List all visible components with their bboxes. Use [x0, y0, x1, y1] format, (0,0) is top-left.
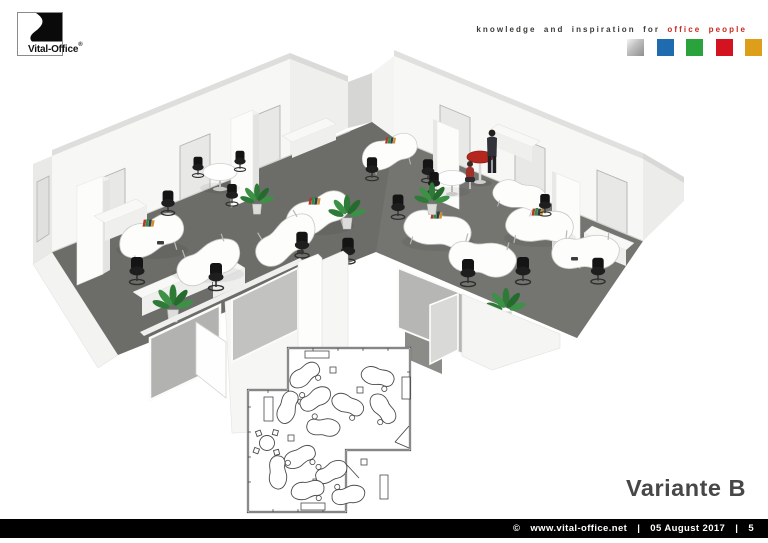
slide: { "header": { "logo": { "text": "Vital-O… — [0, 0, 768, 543]
office-chair — [161, 191, 175, 216]
footer-website[interactable]: www.vital-office.net — [530, 523, 627, 534]
tagline-prefix: knowledge and inspiration for — [476, 25, 660, 34]
footer-separator: | — [637, 523, 640, 534]
copyright-symbol: © — [513, 523, 520, 534]
office-chair — [366, 157, 379, 180]
variant-title: Variante B — [626, 475, 746, 502]
office-chair — [209, 263, 224, 291]
desk-phone — [157, 241, 164, 245]
office-chair — [226, 184, 238, 206]
office-chair — [234, 151, 245, 172]
valley-wall-left — [348, 73, 372, 128]
office-chair — [130, 257, 145, 285]
blue-square — [657, 39, 674, 56]
office-chair — [516, 257, 531, 285]
brand-color-squares — [627, 39, 762, 56]
tagline: knowledge and inspiration for office peo… — [476, 25, 747, 34]
office-chair — [461, 259, 476, 287]
footer-separator: | — [735, 523, 738, 534]
open-door — [196, 322, 226, 398]
office-chair — [539, 194, 551, 216]
logo-wordmark: Vital-Office® — [28, 42, 82, 55]
green-square — [686, 39, 703, 56]
office-chair — [391, 195, 405, 220]
red-square — [716, 39, 733, 56]
corner-post — [298, 254, 322, 356]
office-3d-rendering — [0, 0, 768, 543]
right-end-wall — [643, 159, 684, 241]
footer-bar: © www.vital-office.net | 05 August 2017 … — [0, 519, 768, 538]
desk-phone — [571, 257, 578, 261]
registered-mark: ® — [78, 42, 82, 48]
gold-square — [745, 39, 762, 56]
silver-square — [627, 39, 644, 56]
door — [37, 176, 49, 242]
page-number: 5 — [748, 523, 754, 534]
footer-date: 05 August 2017 — [650, 523, 725, 534]
office-chair — [295, 232, 309, 258]
office-chair — [192, 157, 203, 178]
open-door — [430, 294, 458, 364]
tagline-highlight: office people — [667, 25, 747, 34]
office-chair — [591, 258, 605, 284]
vital-office-logo: Vital-Office® — [17, 12, 127, 62]
